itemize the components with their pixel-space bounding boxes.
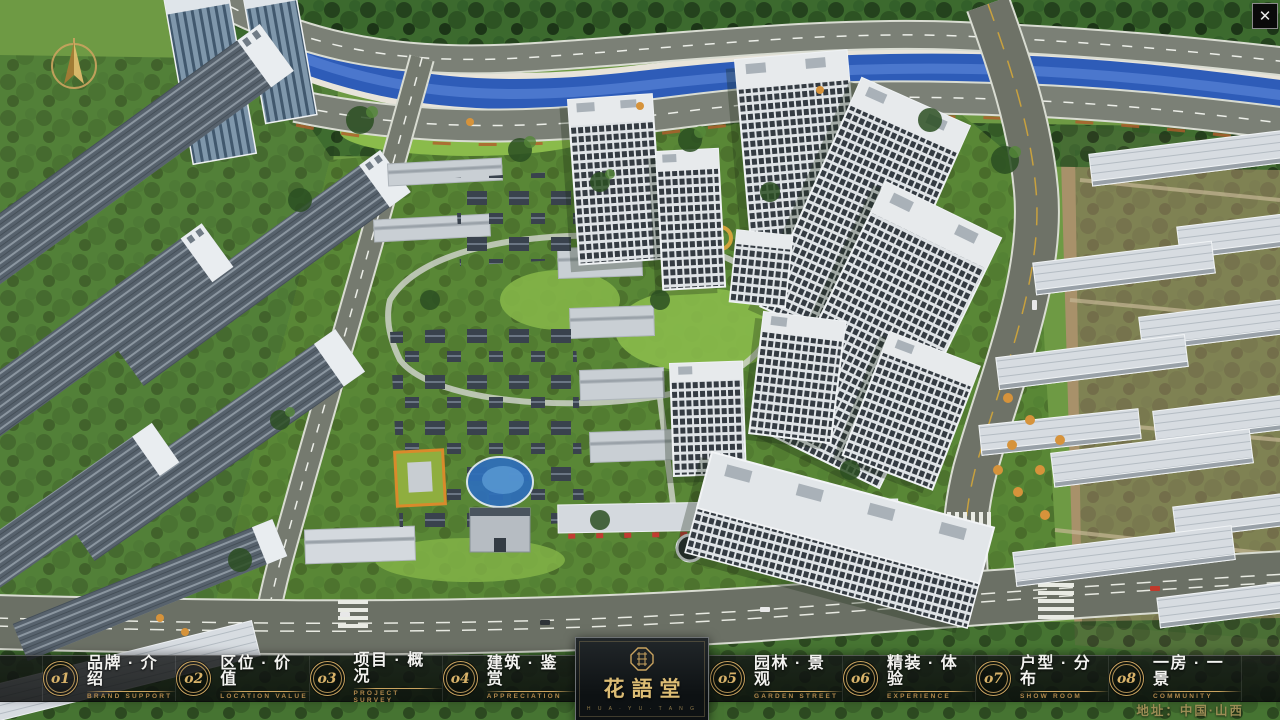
nav-number-badge: o2	[176, 661, 211, 696]
nav-label-zh: 一房 · 一景	[1153, 656, 1241, 688]
nav-number-badge: o4	[443, 661, 478, 696]
nav-label-zh: 园林 · 景观	[754, 656, 842, 688]
gold-divider	[1153, 691, 1241, 692]
logo-seal-icon	[630, 647, 654, 671]
gold-divider	[887, 691, 975, 692]
gold-divider	[354, 688, 442, 689]
gold-divider	[220, 691, 308, 692]
nav-group-right: o5 园林 · 景观GARDEN STREET o6 精装 · 体验EXPERI…	[709, 656, 1280, 701]
nav-item-decoration[interactable]: o6 精装 · 体验EXPERIENCE	[842, 656, 975, 701]
compass-icon	[48, 34, 100, 96]
masterplan-render	[0, 0, 1280, 720]
nav-label-zh: 品牌 · 介绍	[87, 656, 175, 688]
close-button[interactable]: ✕	[1252, 3, 1278, 29]
nav-label-zh: 精装 · 体验	[887, 656, 975, 688]
nav-label-zh: 项目 · 概况	[354, 653, 442, 685]
nav-number-badge: o1	[43, 661, 78, 696]
nav-item-architecture[interactable]: o4 建筑 · 鉴赏APPRECIATION	[442, 656, 575, 701]
gold-divider	[487, 691, 575, 692]
nav-label-en: GARDEN STREET	[754, 694, 838, 701]
nav-label-en: SHOW ROOM	[1020, 694, 1082, 701]
nav-number-badge: o8	[1109, 661, 1144, 696]
nav-number-badge: o7	[976, 661, 1011, 696]
nav-item-brand[interactable]: o1 品牌 · 介绍BRAND SUPPORT	[42, 656, 175, 701]
nav-group-left: o1 品牌 · 介绍BRAND SUPPORT o2 区位 · 价值LOCATI…	[0, 656, 575, 701]
project-logo[interactable]: 花語堂 H U A · Y U · T A N G	[575, 637, 709, 720]
aerial-map-viewport[interactable]	[0, 0, 1280, 720]
nav-item-garden[interactable]: o5 园林 · 景观GARDEN STREET	[709, 656, 842, 701]
nav-label-zh: 建筑 · 鉴赏	[487, 656, 575, 688]
nav-label-en: EXPERIENCE	[887, 694, 951, 701]
nav-number-badge: o5	[710, 661, 745, 696]
nav-item-location[interactable]: o2 区位 · 价值LOCATION VALUE	[175, 656, 308, 701]
gold-divider	[87, 691, 175, 692]
chinese-gate	[470, 508, 530, 552]
project-address: 地址：中国·山西	[1136, 700, 1244, 719]
nav-label-en: APPRECIATION	[487, 694, 562, 701]
gold-divider	[1020, 691, 1108, 692]
nav-item-project[interactable]: o3 项目 · 概况PROJECT SURVEY	[309, 656, 442, 701]
gold-divider	[754, 691, 842, 692]
presentation-screen: ✕ o1 品牌 · 介绍BRAND SUPPORT o2 区位 · 价值LOCA…	[0, 0, 1280, 720]
nav-label-en: BRAND SUPPORT	[87, 694, 172, 701]
logo-title: 花語堂	[597, 673, 688, 703]
nav-label-zh: 区位 · 价值	[220, 656, 308, 688]
nav-label-en: LOCATION VALUE	[220, 694, 308, 701]
bottom-nav-bar: o1 品牌 · 介绍BRAND SUPPORT o2 区位 · 价值LOCATI…	[0, 655, 1280, 702]
nav-item-room-view[interactable]: o8 一房 · 一景COMMUNITY	[1108, 656, 1242, 701]
nav-item-floorplan[interactable]: o7 户型 · 分布SHOW ROOM	[975, 656, 1108, 701]
logo-caption: H U A · Y U · T A N G	[587, 706, 697, 712]
nav-number-badge: o3	[310, 661, 345, 696]
nav-label-zh: 户型 · 分布	[1020, 656, 1108, 688]
nav-number-badge: o6	[843, 661, 878, 696]
nav-label-en: PROJECT SURVEY	[354, 691, 442, 704]
